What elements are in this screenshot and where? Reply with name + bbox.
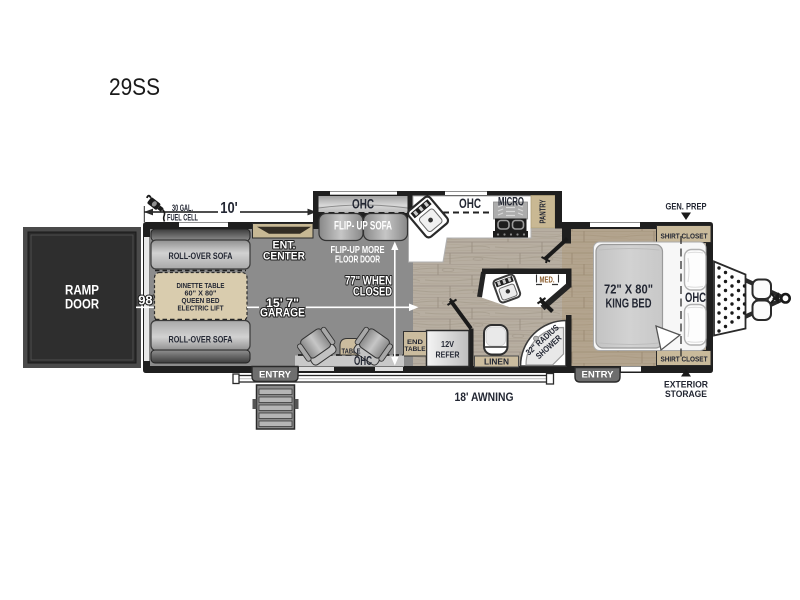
svg-text:FUEL CELL: FUEL CELL [167,213,198,223]
svg-text:10': 10' [220,200,238,217]
svg-text:29SS: 29SS [109,74,160,101]
svg-text:GEN. PREP: GEN. PREP [666,202,708,213]
svg-text:OHC: OHC [459,195,481,211]
svg-text:MED.: MED. [540,276,555,285]
svg-text:CENTER: CENTER [263,251,305,263]
svg-text:REFER: REFER [436,350,460,360]
svg-text:12V: 12V [441,339,454,349]
svg-text:MICRO: MICRO [498,197,524,209]
svg-text:SHIRT CLOSET: SHIRT CLOSET [661,232,709,241]
svg-text:30 GAL.: 30 GAL. [172,203,193,213]
svg-text:END: END [407,339,423,346]
svg-text:FLOOR DOOR: FLOOR DOOR [335,254,380,266]
svg-text:ENTRY: ENTRY [259,370,292,381]
svg-text:FLIP- UP SOFA: FLIP- UP SOFA [334,221,392,233]
svg-text:OHC: OHC [354,354,372,368]
svg-text:CLOSED: CLOSED [353,287,392,299]
svg-text:OHC: OHC [685,290,706,305]
svg-text:DOOR: DOOR [65,297,99,312]
svg-text:TABLE: TABLE [405,346,426,353]
svg-text:LINEN: LINEN [484,358,509,367]
svg-text:OHC: OHC [352,196,374,212]
svg-text:ENTRY: ENTRY [582,370,615,381]
svg-text:ROLL-OVER SOFA: ROLL-OVER SOFA [169,335,233,346]
svg-text:STORAGE: STORAGE [665,389,707,400]
svg-text:GARAGE: GARAGE [260,308,305,320]
svg-text:RAMP: RAMP [65,283,99,298]
svg-text:ELECTRIC LIFT: ELECTRIC LIFT [178,304,224,313]
svg-text:ROLL-OVER SOFA: ROLL-OVER SOFA [169,251,233,262]
svg-text:PANTRY: PANTRY [538,199,548,223]
svg-text:72" X 80": 72" X 80" [604,282,653,297]
svg-text:SHIRT CLOSET: SHIRT CLOSET [661,355,709,364]
svg-text:KING BED: KING BED [606,296,652,311]
svg-text:18' AWNING: 18' AWNING [455,390,514,404]
